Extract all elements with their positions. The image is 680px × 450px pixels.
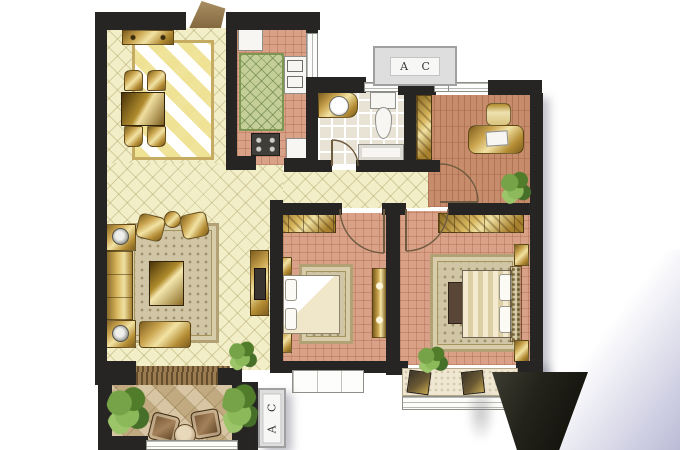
fade-smudge [466, 384, 496, 442]
living-room-plant [228, 340, 258, 372]
bedroom1-door-arc [340, 209, 384, 253]
floor-plan-canvas: A C A C [0, 0, 680, 450]
study-plant [500, 170, 532, 206]
master-bedroom-plant [416, 346, 450, 374]
balcony-plant-right [222, 380, 258, 438]
study-door-arc [440, 164, 478, 202]
bathroom-door-arc [332, 140, 358, 166]
balcony-plant-left [106, 384, 150, 438]
master-door-arc [406, 209, 448, 251]
